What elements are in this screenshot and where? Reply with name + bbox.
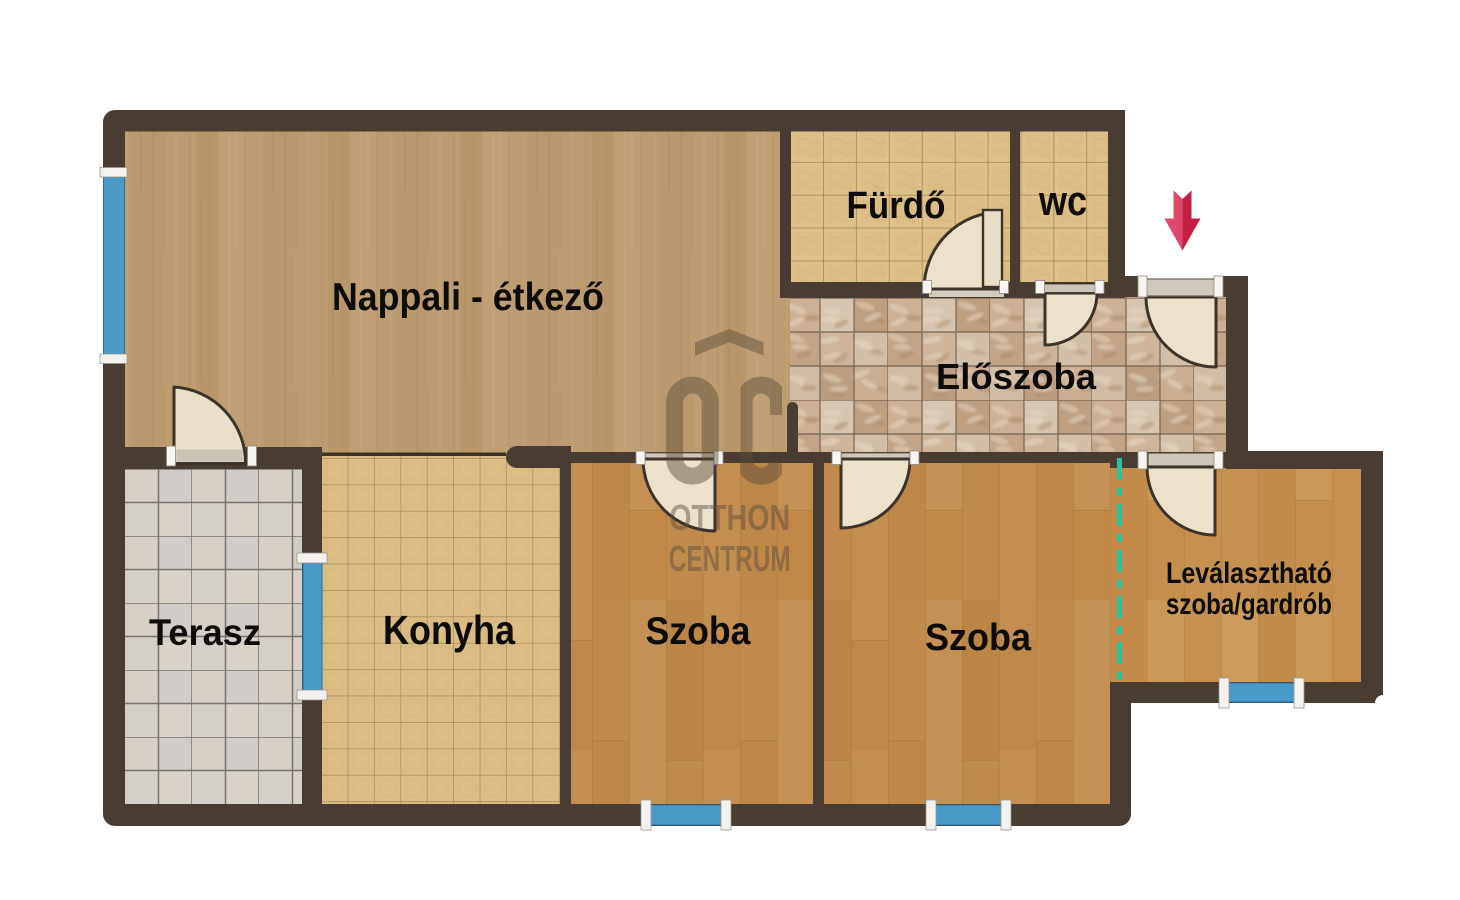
svg-text:wc: wc [1038, 177, 1087, 224]
svg-text:Nappali - étkező: Nappali - étkező [332, 276, 604, 319]
svg-text:Fürdő: Fürdő [847, 185, 946, 227]
svg-text:Szoba: Szoba [925, 617, 1032, 659]
svg-text:OTTHON: OTTHON [669, 497, 790, 538]
svg-text:Leválasztható: Leválasztható [1166, 557, 1332, 590]
svg-text:Szoba: Szoba [646, 610, 751, 653]
svg-text:Előszoba: Előszoba [936, 356, 1097, 397]
svg-text:Terasz: Terasz [149, 612, 261, 653]
svg-text:Konyha: Konyha [383, 607, 516, 653]
svg-text:CENTRUM: CENTRUM [669, 538, 791, 579]
svg-text:szoba/gardrób: szoba/gardrób [1166, 588, 1332, 621]
